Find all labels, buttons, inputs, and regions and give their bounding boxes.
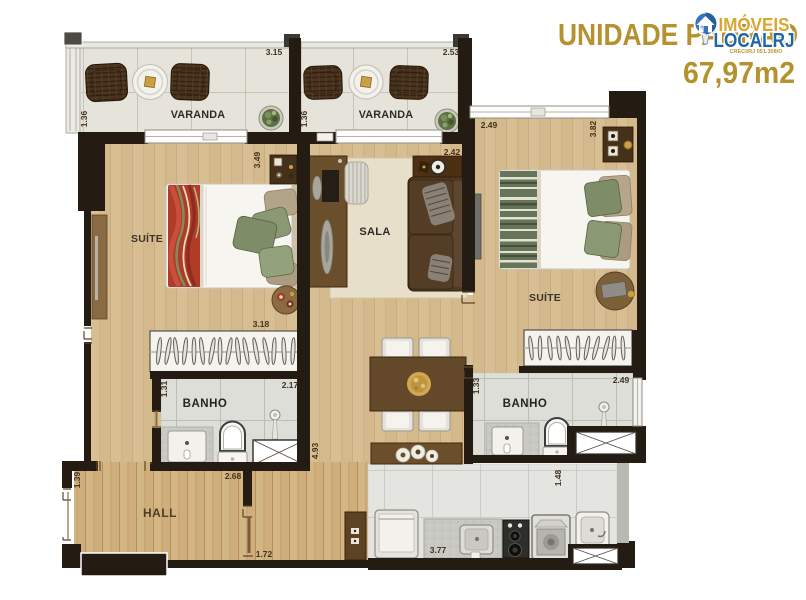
svg-text:4.93: 4.93 — [310, 442, 320, 459]
svg-text:3.77: 3.77 — [430, 545, 447, 555]
svg-text:1.48: 1.48 — [553, 469, 563, 486]
svg-text:2.53: 2.53 — [443, 47, 460, 57]
svg-text:3.15: 3.15 — [266, 47, 283, 57]
svg-text:3.82: 3.82 — [588, 120, 598, 137]
svg-text:3.49: 3.49 — [252, 151, 262, 168]
svg-text:1.39: 1.39 — [72, 471, 82, 488]
svg-text:SALA: SALA — [359, 226, 390, 238]
svg-text:3.18: 3.18 — [253, 319, 270, 329]
svg-text:HALL: HALL — [143, 506, 177, 520]
svg-text:1.72: 1.72 — [256, 549, 273, 559]
svg-text:1.33: 1.33 — [471, 377, 481, 394]
svg-text:BANHO: BANHO — [183, 398, 228, 410]
svg-text:BANHO: BANHO — [503, 398, 548, 410]
svg-text:VARANDA: VARANDA — [359, 109, 414, 121]
svg-text:2.49: 2.49 — [613, 375, 630, 385]
svg-text:CRECI/RJ 051.308/O: CRECI/RJ 051.308/O — [730, 49, 784, 55]
svg-text:2.68: 2.68 — [225, 471, 242, 481]
svg-text:1.31: 1.31 — [159, 380, 169, 397]
svg-text:2.42: 2.42 — [444, 147, 461, 157]
svg-text:2.49: 2.49 — [481, 120, 498, 130]
svg-text:SUÍTE: SUÍTE — [131, 232, 163, 245]
svg-text:1.36: 1.36 — [79, 110, 89, 127]
svg-text:67,97m2: 67,97m2 — [683, 55, 795, 90]
svg-text:VARANDA: VARANDA — [171, 109, 226, 121]
svg-text:SUÍTE: SUÍTE — [529, 291, 561, 304]
svg-text:1.36: 1.36 — [299, 110, 309, 127]
svg-text:2.17: 2.17 — [282, 380, 299, 390]
